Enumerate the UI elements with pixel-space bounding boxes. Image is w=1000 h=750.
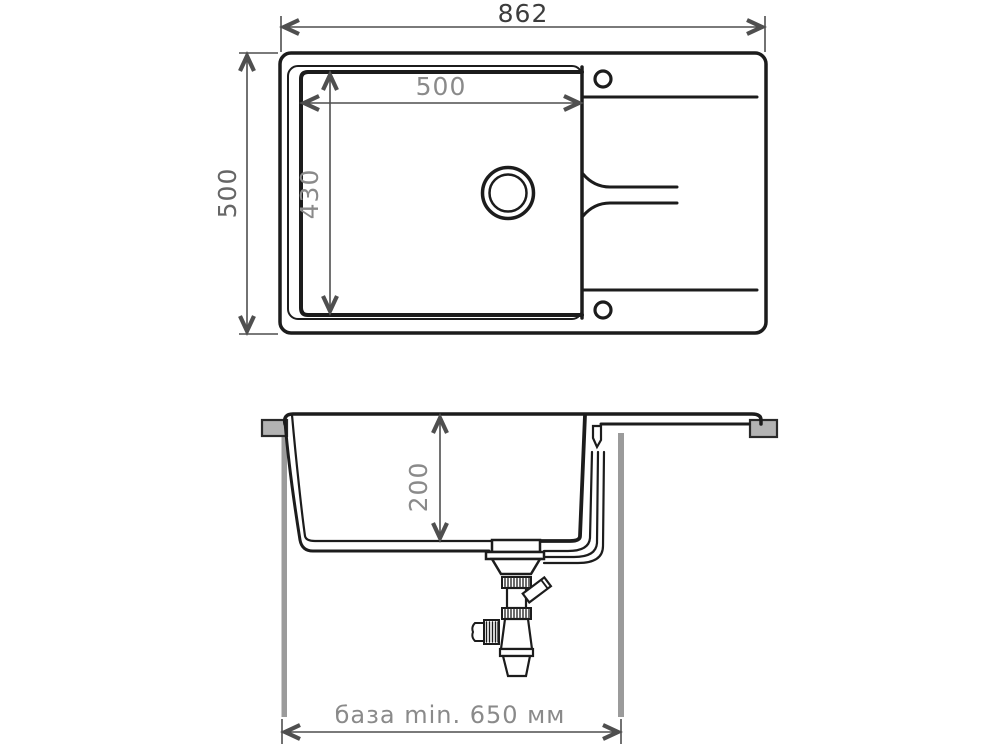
siphon-body [501,619,532,649]
cabinet-panel-right [618,433,624,717]
top-view [280,53,766,333]
drain-flange-cup [492,559,540,574]
shell-outer-right [544,452,592,551]
siphon-tube [507,588,526,608]
overflow-pipe-line-2 [544,452,604,563]
section-view [262,414,777,717]
siphon-assembly [472,540,551,676]
mounting-bracket-right [750,420,777,437]
dimension-overall-depth [239,53,278,334]
drain-flange-top [492,540,540,552]
siphon-nut-lower-ribs [505,610,529,618]
label-overall-depth: 500 [213,168,242,219]
label-bowl-depth: 430 [295,169,324,220]
bowl-wall-right [540,415,585,541]
siphon-nut-upper-ribs [505,579,529,587]
sink-drawing-page: 862 500 500 430 [0,0,1000,750]
sink-technical-drawing: 862 500 500 430 [0,0,1000,750]
cabinet-panel-left [282,436,288,717]
waste-pipe-stub [472,623,484,641]
label-bowl-height: 200 [404,462,433,513]
siphon-cup [503,656,530,676]
dimension-bowl-height [433,417,447,539]
bowl-wall-left-inner [292,415,494,541]
drainboard-lip [593,426,601,447]
label-overall-width: 862 [498,0,549,28]
bowl-wall-left-outer [285,422,489,551]
label-bowl-width: 500 [416,72,467,101]
label-cabinet-base: база min. 650 мм [335,701,566,729]
